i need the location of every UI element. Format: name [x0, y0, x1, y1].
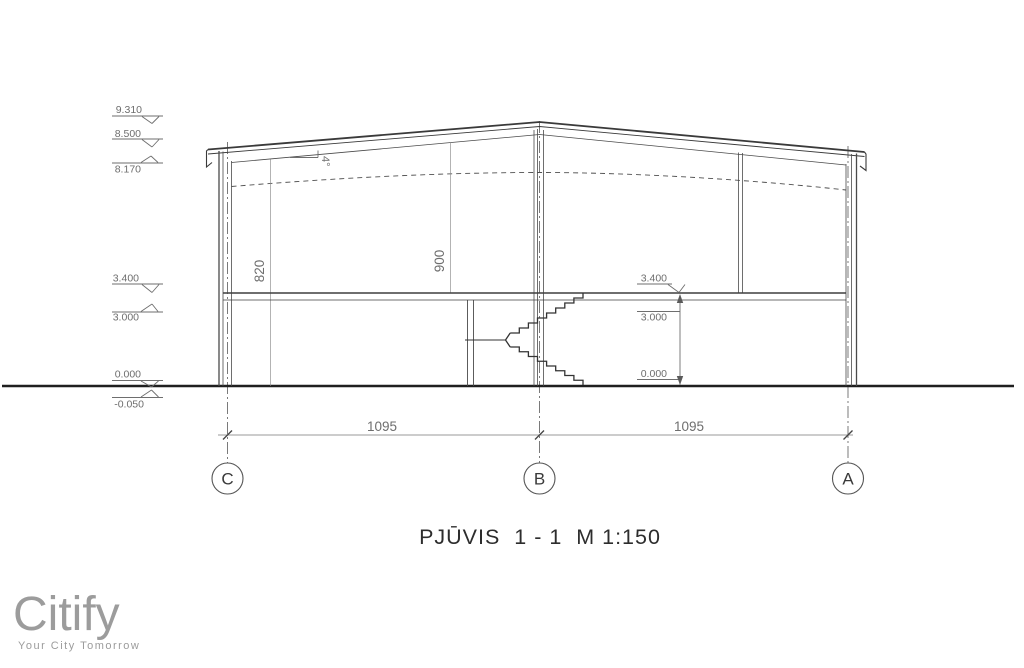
marker-floor-top [112, 284, 163, 293]
marker-eave-top [112, 139, 163, 147]
logo-name: Citify [13, 591, 140, 639]
section-drawing: 4° [0, 0, 1024, 668]
marker-arrow-down [142, 285, 159, 293]
roof-slope-label: 4° [319, 156, 331, 167]
elev-label-ground: 0.000 [115, 369, 141, 381]
span-label-ba: 1095 [674, 419, 704, 434]
logo-tagline: Your City Tomorrow [13, 640, 140, 652]
walls [219, 129, 857, 386]
right-label-upper: 3.000 [641, 312, 667, 324]
marker-arrow-up [141, 390, 159, 397]
roof-slope-annotation: 4° [290, 151, 331, 167]
marker-right-floor [637, 284, 685, 293]
axis-letter-c: C [221, 470, 233, 489]
stairs [465, 293, 583, 385]
citify-logo: Citify Your City Tomorrow [13, 591, 140, 652]
elev-label-apex: 9.310 [116, 104, 142, 116]
span-dimensions: 1095 1095 [218, 419, 853, 440]
stair-upper-flight [510, 293, 583, 333]
elev-label-eave-bottom: 8.170 [115, 164, 141, 176]
marker-arrow-down [142, 117, 159, 124]
gutter-left [207, 150, 213, 168]
marker-arrow-up [141, 304, 158, 312]
marker-below-ground [112, 390, 163, 398]
elev-label-floor-bottom: 3.000 [113, 312, 139, 324]
marker-arrow-down [668, 285, 685, 293]
member-dim-900: 900 [432, 250, 447, 273]
elev-label-below-ground: -0.050 [114, 399, 144, 411]
floor-slab [223, 293, 846, 300]
marker-arrow-up [141, 156, 158, 163]
right-label-lower: 0.000 [641, 368, 667, 380]
stair-lower-flight [510, 347, 583, 385]
marker-arrow-down [142, 140, 159, 148]
member-dim-820: 820 [252, 260, 267, 283]
marker-apex [112, 116, 163, 124]
axis-letter-b: B [534, 470, 545, 489]
elev-label-floor-top: 3.400 [113, 273, 139, 285]
stair-landing-vertex [506, 333, 511, 347]
elevation-markers-left [112, 116, 163, 398]
truss-bottom-chord-dashed [232, 173, 847, 191]
axis-letter-a: A [842, 470, 854, 489]
section-drawing-page: 4° [0, 0, 1024, 668]
drawing-title: PJŪVIS 1 - 1 M 1:150 [419, 524, 661, 549]
right-label-floor: 3.400 [641, 273, 667, 285]
member-dimensions: 820 900 [252, 250, 447, 283]
arrowhead-up [677, 294, 683, 303]
elevation-labels-left: 9.310 8.500 8.170 3.400 3.000 0.000 -0.0… [113, 104, 144, 411]
gutter-right [860, 152, 866, 171]
marker-eave-bottom [112, 156, 163, 163]
span-label-cb: 1095 [367, 419, 397, 434]
roof [207, 122, 867, 190]
elevation-labels-right: 3.400 3.000 0.000 [641, 273, 667, 381]
elev-label-eave-top: 8.500 [115, 128, 141, 140]
axis-bubbles: C B A [212, 463, 864, 494]
arrowhead-down [677, 376, 683, 385]
